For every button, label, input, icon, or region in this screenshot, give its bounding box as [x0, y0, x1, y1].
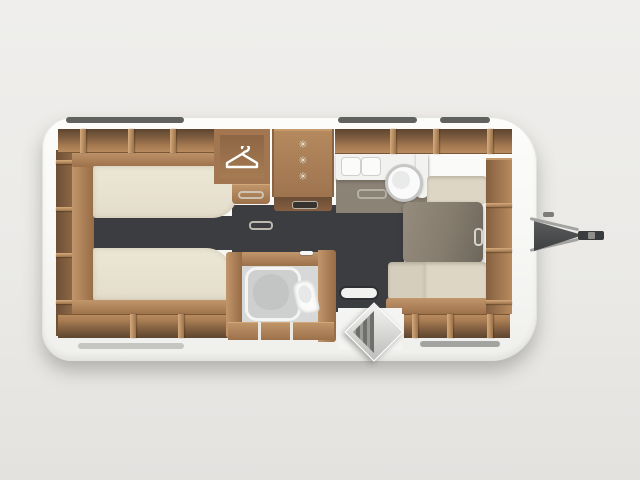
shelf-divider	[56, 160, 73, 164]
wardrobe-drawer	[232, 184, 270, 204]
table-handle	[474, 228, 483, 246]
sink-bowl	[392, 171, 410, 189]
washbasin-faucet	[300, 251, 313, 255]
toilet-bowl	[297, 284, 313, 304]
overhead-lockers-top-left	[58, 129, 216, 153]
dinette-sideboard	[486, 158, 512, 314]
hanger-icon	[225, 146, 259, 172]
locker-divider	[178, 314, 184, 338]
locker-divider	[128, 129, 134, 153]
doormat	[341, 288, 377, 298]
locker-divider	[80, 129, 86, 153]
locker-divider	[433, 129, 439, 154]
locker-divider	[390, 129, 396, 154]
dinette-table	[403, 202, 483, 263]
drawer-gap	[258, 322, 261, 340]
dinette-bench-bottom-right	[425, 262, 487, 300]
locker-divider	[487, 314, 493, 338]
roof-rail-strip	[440, 117, 490, 123]
sideboard-divider	[486, 248, 512, 252]
fridge-base	[274, 197, 332, 211]
shower-drain-area	[253, 274, 289, 310]
caravan-floorplan: ✳ ✳ ✳	[0, 0, 640, 480]
shelf-divider	[56, 300, 73, 304]
lockers-bottom-right	[404, 314, 510, 338]
freezer-star-icon: ✳	[298, 137, 307, 153]
overhead-lockers-top-right	[335, 129, 512, 154]
freezer-star-icon: ✳	[298, 169, 307, 185]
bed-head-shelf	[56, 150, 73, 336]
lockers-bottom-left	[58, 314, 232, 338]
dinette-bench-bottom-left	[388, 262, 425, 300]
hitch-coupler	[578, 231, 604, 240]
fridge-handle	[292, 201, 318, 209]
bathroom-base-drawers	[228, 322, 334, 340]
floor-hatch-handle	[249, 221, 273, 230]
jockey-wheel-handle	[543, 212, 554, 217]
coupler-collar	[588, 232, 595, 239]
locker-divider	[170, 129, 176, 153]
skirt-rail-strip	[420, 341, 500, 347]
locker-divider	[487, 129, 493, 154]
floor-walkway-between-beds	[93, 216, 240, 250]
drawer-handle	[238, 191, 264, 199]
roof-rail-strip	[338, 117, 417, 123]
wardrobe	[214, 129, 270, 184]
hob-burner-lid	[341, 157, 361, 176]
sideboard-divider	[486, 203, 512, 207]
skirt-rail-strip	[78, 343, 184, 349]
freezer-star-icon: ✳	[298, 153, 307, 169]
shelf-divider	[56, 207, 73, 211]
floor-corridor	[232, 205, 336, 252]
sideboard-divider	[486, 300, 512, 304]
locker-divider	[447, 314, 453, 338]
shower-tray	[245, 267, 301, 321]
locker-divider	[130, 314, 136, 338]
freezer-stars: ✳ ✳ ✳	[272, 137, 334, 185]
bed-frame-bottom-rail	[72, 300, 234, 315]
bed-mattress-bottom	[93, 248, 232, 300]
floor-hatch-handle-2	[357, 189, 387, 199]
dinette-bench-top	[427, 176, 487, 204]
fridge: ✳ ✳ ✳	[272, 129, 334, 197]
hob-burner-lid	[361, 157, 381, 176]
roof-rail-strip	[66, 117, 184, 123]
kitchen-sink	[385, 164, 423, 202]
shelf-divider	[56, 253, 73, 257]
locker-divider	[412, 314, 418, 338]
drawer-gap	[290, 322, 293, 340]
door-step-treads	[353, 311, 395, 353]
